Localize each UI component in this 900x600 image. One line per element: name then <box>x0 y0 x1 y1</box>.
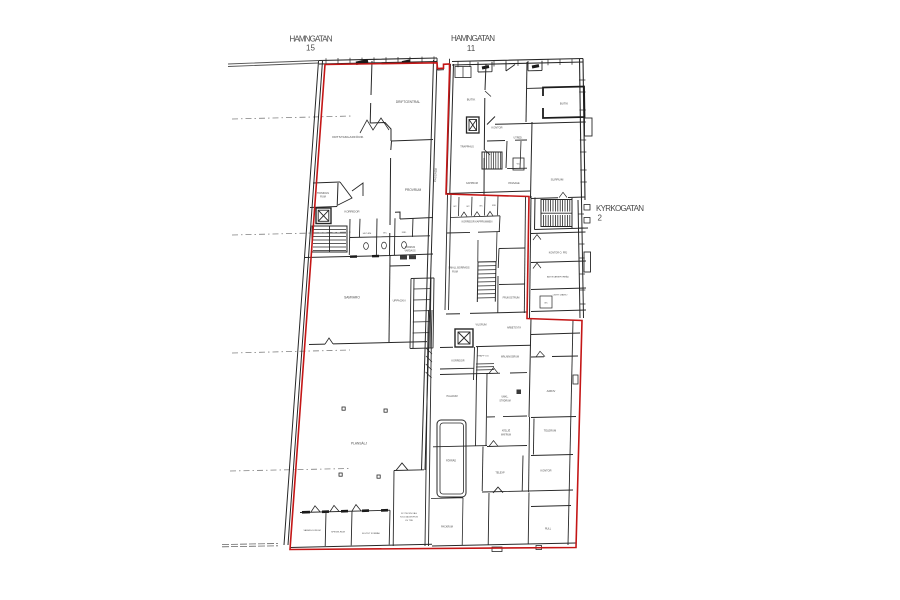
svg-text:UTRED.: UTRED. <box>514 137 523 140</box>
svg-text:ORTSTAMLARFÖRR.: ORTSTAMLARFÖRR. <box>332 135 364 139</box>
svg-text:ATELJÉ: ATELJÉ <box>502 430 511 433</box>
svg-text:UPPACKN: UPPACKN <box>393 299 406 303</box>
svg-text:KONTOR O. FRJ: KONTOR O. FRJ <box>549 252 568 255</box>
svg-text:VILORUM: VILORUM <box>476 324 487 327</box>
svg-text:UMKL.: UMKL. <box>501 397 508 399</box>
svg-text:VARMGOLVRUM: VARMGOLVRUM <box>303 529 320 532</box>
svg-text:SPEGELRUM: SPEGELRUM <box>331 532 345 534</box>
svg-text:KORRIDOR: KORRIDOR <box>452 360 465 363</box>
svg-text:MÅLNINGSRUM: MÅLNINGSRUM <box>501 356 519 359</box>
svg-text:FRD: FRD <box>492 205 497 207</box>
svg-text:DRIFTCENTRAL: DRIFTCENTRAL <box>396 100 420 104</box>
svg-text:KONTOR: KONTOR <box>540 469 551 473</box>
svg-text:2: 2 <box>598 214 603 223</box>
svg-text:WC: WC <box>466 206 470 208</box>
svg-text:TELERUM: TELERUM <box>544 429 556 433</box>
svg-text:PROVRUM: PROVRUM <box>405 188 422 192</box>
svg-text:VARDAGS: VARDAGS <box>404 250 416 253</box>
svg-text:KAPPRUM: KAPPRUM <box>466 182 478 185</box>
svg-text:15: 15 <box>306 44 315 53</box>
svg-text:PASSAGE: PASSAGE <box>508 182 520 185</box>
svg-text:ARBETSYTA: ARBETSYTA <box>507 327 521 330</box>
svg-text:RUM: RUM <box>452 271 458 274</box>
svg-text:BUTIK: BUTIK <box>560 102 568 106</box>
svg-text:FRD: FRD <box>402 232 407 234</box>
svg-text:KORRIDOR KAPPRUMMEN: KORRIDOR KAPPRUMMEN <box>462 221 493 224</box>
svg-text:SLUTET FÖRRÅD: SLUTET FÖRRÅD <box>362 532 381 535</box>
svg-text:FÖRRUM: FÖRRUM <box>405 246 415 249</box>
svg-text:FRUKOSTRUM: FRUKOSTRUM <box>503 297 520 300</box>
svg-text:TRAPPHUS: TRAPPHUS <box>460 146 474 149</box>
svg-text:11: 11 <box>467 44 476 53</box>
svg-text:MATRUM: MATRUM <box>501 434 511 437</box>
svg-text:ARKIV: ARKIV <box>547 389 556 393</box>
svg-text:TELEXP: TELEXP <box>495 472 505 475</box>
svg-text:KONTOR: KONTOR <box>491 126 502 130</box>
svg-text:TRAPP O.D: TRAPP O.D <box>477 355 489 358</box>
svg-text:ANTIKVARIEFÖRRÅD: ANTIKVARIEFÖRRÅD <box>547 276 569 279</box>
svg-text:STÄDRUM: STÄDRUM <box>499 400 510 403</box>
svg-text:HAMNGATAN: HAMNGATAN <box>290 35 333 44</box>
svg-text:FLYTECKN VÄG: FLYTECKN VÄG <box>401 512 417 515</box>
svg-text:WC: WC <box>479 206 483 208</box>
svg-text:RULL: RULL <box>545 528 552 531</box>
svg-text:PLANSÄLJ: PLANSÄLJ <box>351 442 367 446</box>
svg-text:BUTIK: BUTIK <box>467 98 476 102</box>
svg-text:SAMVARO: SAMVARO <box>344 296 360 300</box>
svg-text:LIGHT DIARIO: LIGHT DIARIO <box>553 294 568 297</box>
svg-text:WC: WC <box>453 206 457 208</box>
svg-text:PACKRUM: PACKRUM <box>441 526 453 529</box>
svg-text:LIV TRE: LIV TRE <box>405 520 413 522</box>
svg-text:WC: WC <box>544 303 548 305</box>
svg-text:HAMNGATAN: HAMNGATAN <box>451 34 495 43</box>
svg-text:KORRIDOR: KORRIDOR <box>344 210 359 214</box>
svg-text:HALLRUM: HALLRUM <box>447 395 458 398</box>
svg-text:FÖRRÅD: FÖRRÅD <box>446 460 456 463</box>
svg-text:WC: WC <box>383 233 387 235</box>
svg-text:HLP-RM: HLP-RM <box>363 233 372 235</box>
svg-text:RUM: RUM <box>320 196 326 199</box>
svg-text:KÖLD ADDRVHUS: KÖLD ADDRVHUS <box>400 516 418 519</box>
svg-text:SLRRUM: SLRRUM <box>551 178 564 182</box>
svg-text:SMALL BORRADS: SMALL BORRADS <box>448 267 469 270</box>
svg-text:KYRKOGATAN: KYRKOGATAN <box>596 204 644 213</box>
